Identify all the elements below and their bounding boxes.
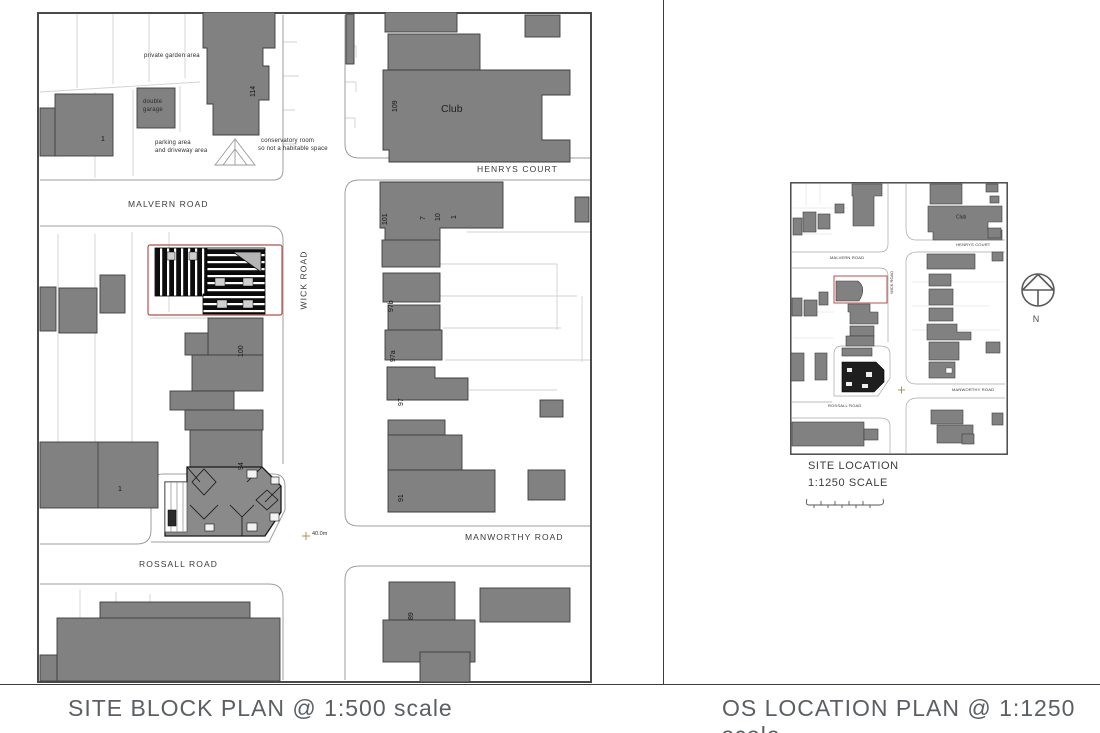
location-plan-panel: MALVERN ROAD WICK ROAD HENRYS COURT MANW… [790,182,1008,455]
location-plan-scale-text: 1:1250 SCALE [808,477,888,489]
annotation-club: Club [441,104,463,115]
house-number-100: 100 [238,345,245,357]
north-label: N [1029,314,1043,324]
plan-sheet: MALVERN ROAD WICK ROAD HENRYS COURT MANW… [0,0,1100,733]
annotation-conservatory-line2: so not a habitable space [258,146,328,152]
site-block-plan-panel: MALVERN ROAD WICK ROAD HENRYS COURT MANW… [37,12,592,683]
house-number-114: 114 [250,86,257,97]
house-number-97b: 97b [388,300,395,312]
mini-club-label: Club [956,215,966,220]
annotation-parking-line1: parking area [155,140,191,146]
road-label-manworthy: MANWORTHY ROAD [465,533,564,542]
os-location-section: MALVERN ROAD WICK ROAD HENRYS COURT MANW… [663,0,1100,684]
house-number-91: 91 [398,494,405,502]
location-plan-title: SITE LOCATION [808,460,899,472]
mini-road-label-rossall: ROSSALL ROAD [828,404,862,408]
annotation-private-garden: private garden area [144,53,200,59]
mini-road-label-manworthy: MANWORTHY ROAD [952,388,994,392]
mini-road-label-malvern: MALVERN ROAD [830,256,864,260]
annotation-parking-line2: and driveway area [155,148,207,154]
mini-building-notch [946,368,952,373]
caption-os-location-plan: OS LOCATION PLAN @ 1:1250 scale [722,695,1100,733]
house-number-101: 101 [382,213,389,225]
caption-divider [0,684,1100,685]
house-number-7: 7 [420,216,427,220]
mini-black-house [842,362,884,392]
scale-bar [805,496,889,512]
block-plan-drawing [37,12,592,683]
road-label-wick: WICK ROAD [300,250,309,309]
road-label-rossall: ROSSALL ROAD [139,560,218,569]
spot-level-label: 40.0m [312,532,327,538]
annotation-double-garage-line2: garage [143,107,163,113]
house-number-1-top: 1 [101,136,105,143]
road-label-malvern: MALVERN ROAD [128,200,209,209]
caption-site-block-plan: SITE BLOCK PLAN @ 1:500 scale [68,695,453,722]
mini-road-label-henrys: HENRYS COURT [956,243,990,247]
house-number-1-row: 1 [451,215,458,219]
house-number-10: 10 [435,213,442,221]
house-number-94: 94 [238,462,245,470]
annotation-double-garage-line1: double [143,99,162,105]
house-number-97: 97 [398,398,405,406]
north-arrow-icon [1015,268,1061,314]
house-number-109: 109 [392,100,399,112]
location-plan-drawing [790,182,1008,455]
mini-road-label-wick: WICK ROAD [890,271,894,294]
house-number-89: 89 [408,612,415,620]
house-number-97a: 97a [390,350,397,362]
house-number-1-bottom: 1 [118,486,122,493]
road-label-henrys: HENRYS COURT [477,165,558,174]
annotation-conservatory-line1: conservatory room [261,138,314,144]
